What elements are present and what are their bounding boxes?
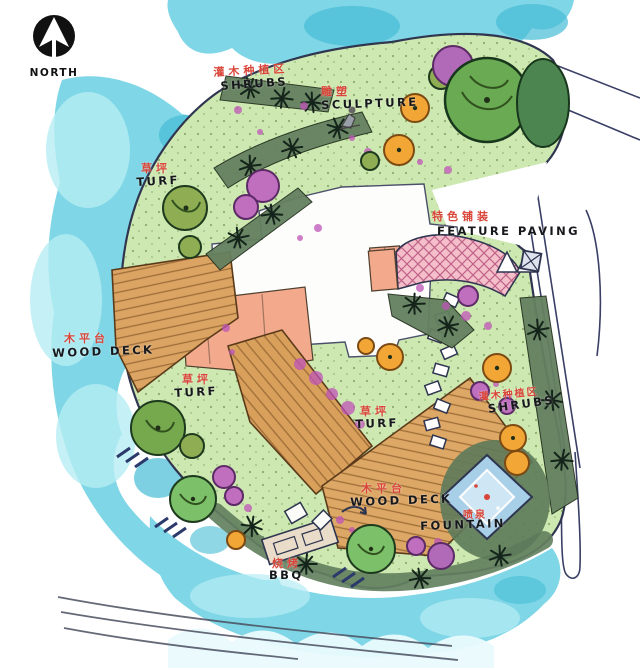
north-compass: NORTH <box>22 12 86 79</box>
plan-artwork <box>0 0 640 670</box>
compass-label: NORTH <box>22 67 86 79</box>
landscape-plan: NORTH 灌木种植区 SHRUBS 雕塑 SCULPTURE 草坪 TURF … <box>0 0 640 670</box>
north-arrow-icon <box>30 12 78 62</box>
